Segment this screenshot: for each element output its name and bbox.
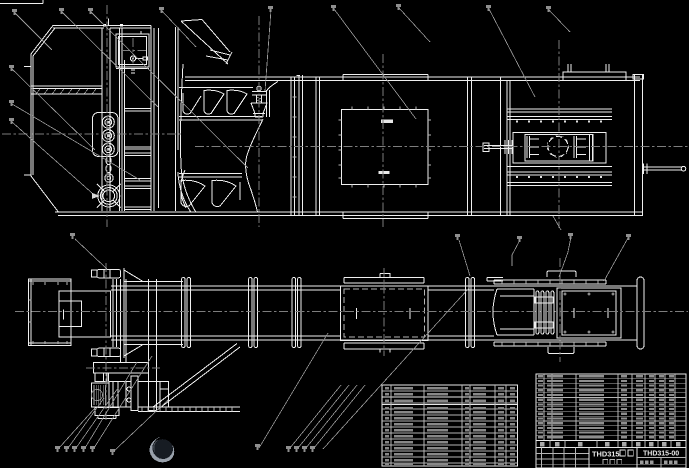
svg-text:THD315-00: THD315-00 — [643, 451, 679, 458]
svg-text:THD315: THD315 — [592, 450, 620, 459]
